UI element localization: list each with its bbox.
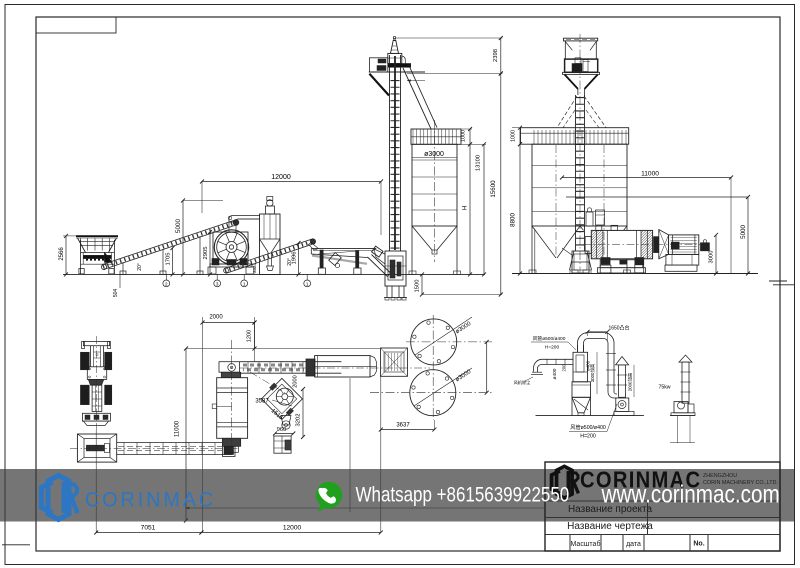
svg-text:11000: 11000 [641,171,659,178]
svg-text:ø400: ø400 [552,368,558,379]
svg-text:No.: No. [693,541,704,548]
svg-text:200: 200 [562,364,567,372]
svg-text:2000加高: 2000加高 [627,372,634,391]
svg-text:3637: 3637 [396,423,410,429]
svg-text:风管ø500/ø400: 风管ø500/ø400 [533,335,566,342]
svg-text:2: 2 [165,282,168,287]
svg-text:3587: 3587 [255,399,269,405]
svg-text:1: 1 [306,282,309,287]
svg-text:Whatsapp +8615639922550: Whatsapp +8615639922550 [356,482,570,506]
svg-text:7051: 7051 [141,525,156,532]
svg-text:3202: 3202 [296,414,302,427]
svg-text:5000: 5000 [175,218,182,233]
svg-text:2566: 2566 [59,247,65,261]
svg-text:1500: 1500 [415,280,421,293]
svg-text:20°: 20° [137,263,143,271]
svg-text:1705: 1705 [166,253,172,266]
svg-text:3000: 3000 [709,251,715,264]
svg-text:1650凸台: 1650凸台 [608,325,629,332]
svg-text:дата: дата [626,541,641,548]
svg-text:11000: 11000 [175,420,181,437]
svg-text:1: 1 [243,282,246,287]
svg-text:8800: 8800 [510,213,517,227]
svg-text:2000: 2000 [209,315,223,321]
svg-text:风机除尘: 风机除尘 [514,379,531,386]
svg-text:1996: 1996 [292,252,298,265]
svg-text:2398: 2398 [493,49,499,62]
svg-text:ZHENGZHOU: ZHENGZHOU [703,473,737,479]
svg-text:12000: 12000 [283,525,302,532]
svg-text:H: H [463,206,469,210]
svg-text:www.corinmac.com: www.corinmac.com [601,480,780,508]
svg-text:1000: 1000 [461,130,467,142]
svg-text:①: ① [95,352,99,357]
svg-text:CORINMAC: CORINMAC [85,488,216,512]
svg-text:15600: 15600 [490,180,497,198]
svg-text:风管ø500/ø400: 风管ø500/ø400 [570,423,606,431]
svg-text:Название чертежа: Название чертежа [567,521,653,532]
svg-text:H=200: H=200 [545,345,560,351]
svg-text:5000: 5000 [740,225,747,239]
svg-text:12000: 12000 [271,174,291,181]
svg-text:ø400: ø400 [586,360,591,371]
svg-text:13100: 13100 [476,155,482,171]
svg-text:2905: 2905 [203,247,209,260]
svg-text:3: 3 [216,282,219,287]
svg-text:2000: 2000 [293,375,299,387]
svg-text:Масштаб: Масштаб [571,540,601,548]
svg-text:960: 960 [277,427,287,433]
svg-text:1200: 1200 [247,330,253,342]
svg-text:504: 504 [113,289,119,298]
svg-text:ø3000: ø3000 [424,151,444,158]
svg-text:75kw: 75kw [658,385,670,391]
svg-text:1000: 1000 [511,130,517,142]
svg-text:H=200: H=200 [580,434,596,440]
